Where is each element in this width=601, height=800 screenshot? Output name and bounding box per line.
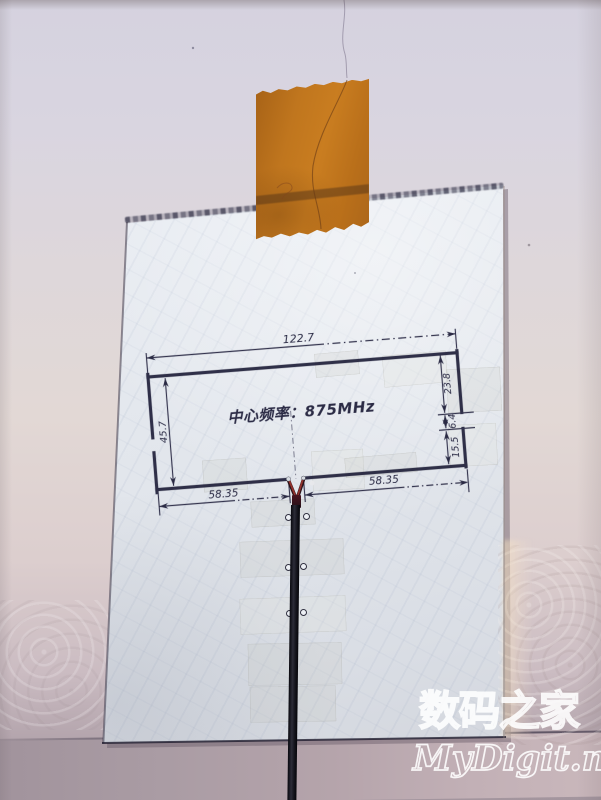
solder-joint xyxy=(286,477,290,481)
watermark-site-name: 数码之家 xyxy=(419,691,579,732)
mounting-hole xyxy=(300,563,307,570)
tape-smudge-band xyxy=(256,184,369,205)
center-frequency-label: 中心频率：875MHz xyxy=(227,397,376,427)
watermark-site-url: MyDigit.net xyxy=(413,741,601,776)
wall-plaster-texture-left xyxy=(0,600,110,730)
dim-label-right-gap: 6.4 xyxy=(447,413,459,429)
dim-label-right-upper: 23.8 xyxy=(442,373,455,395)
dim-label-bottom-left: 58.35 xyxy=(208,487,239,501)
feed-point xyxy=(275,470,325,515)
mounting-hole xyxy=(300,609,307,616)
paper-right-edge xyxy=(503,186,505,738)
dim-label-right-lower: 15.5 xyxy=(450,436,463,458)
dim-label-top-width: 122.7 xyxy=(282,331,314,346)
dim-label-bottom-right: 58.35 xyxy=(368,474,399,488)
dim-label-left-height: 45.7 xyxy=(157,420,170,444)
masking-tape xyxy=(256,78,369,240)
photo-scene: 122.7 45.7 23.8 6.4 15.5 58.35 58.35 中心频… xyxy=(0,0,601,800)
